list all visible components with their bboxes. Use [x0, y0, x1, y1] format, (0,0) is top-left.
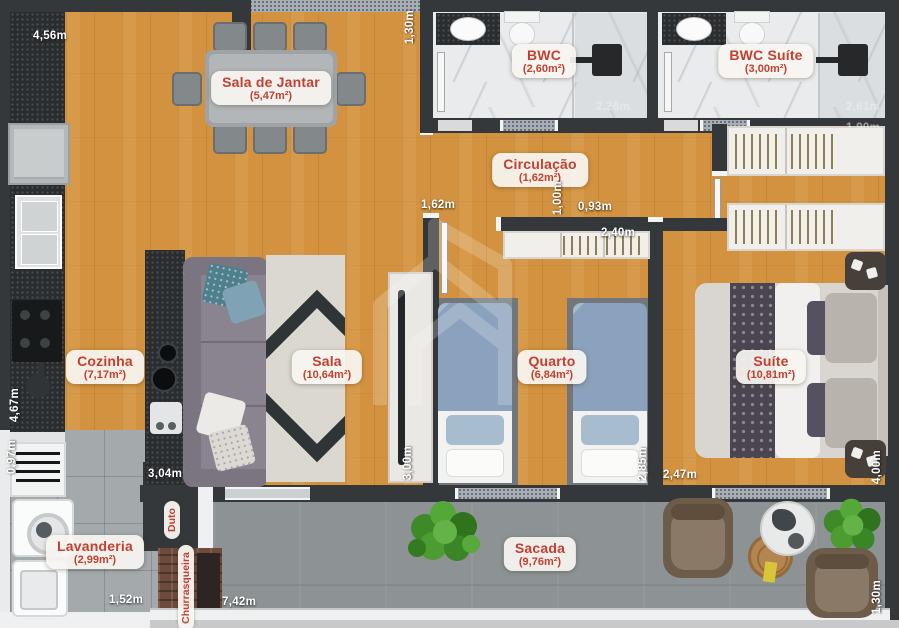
- refrigerator: [8, 123, 70, 185]
- dimension-label: 2,47m: [663, 469, 697, 481]
- room-area: (1,62m²): [503, 172, 577, 184]
- wall: [648, 217, 663, 487]
- room-label-circulacao: Circulação (1,62m²): [492, 153, 588, 187]
- dining-chair: [213, 124, 247, 154]
- dining-chair: [336, 72, 366, 106]
- hanging-clothes: [791, 134, 839, 169]
- room-label-cozinha: Cozinha (7,17m²): [66, 350, 144, 384]
- hanging-clothes: [735, 134, 777, 169]
- room-label-suite: Suíte (10,81m²): [736, 350, 806, 384]
- room-area: (3,00m²): [729, 63, 802, 75]
- bed-pillow: [825, 293, 877, 363]
- hanging-clothes: [563, 236, 597, 255]
- nightstand: [845, 252, 886, 290]
- dimension-label: 4,56m: [33, 30, 67, 42]
- shower-head: [838, 44, 868, 76]
- wall: [420, 0, 433, 135]
- dimension-label: 1,90m: [846, 122, 880, 134]
- room-area: (5,47m²): [222, 90, 320, 102]
- room-label-quarto: Quarto (6,84m²): [517, 350, 586, 384]
- label-duto: Duto: [164, 501, 180, 539]
- room-name: Lavanderia: [57, 538, 133, 554]
- shower-arm: [816, 57, 840, 63]
- kitchen-sink: [15, 195, 62, 269]
- doorway: [664, 120, 698, 131]
- toilet-bowl: [739, 22, 765, 46]
- island-panel: [150, 402, 182, 434]
- hanging-clothes: [735, 210, 777, 244]
- room-area: (2,60m²): [523, 63, 565, 75]
- hanging-clothes: [791, 210, 839, 244]
- room-name: Suíte: [747, 353, 795, 369]
- dining-chair: [172, 72, 202, 106]
- room-name: Sala de Jantar: [222, 74, 320, 90]
- dimension-label: 7,42m: [222, 596, 256, 608]
- dimension-label: 1,00m: [552, 181, 564, 215]
- coffee-table: [760, 501, 815, 556]
- dining-chair: [253, 22, 287, 52]
- dimension-label: 0,93m: [578, 201, 612, 213]
- room-name: Circulação: [503, 156, 577, 172]
- outdoor-armchair: [806, 548, 878, 618]
- room-label-lavanderia: Lavanderia (2,99m²): [46, 535, 144, 569]
- bathroom-sink: [676, 17, 712, 41]
- outdoor-armchair: [663, 498, 733, 578]
- dimension-label: 1,52m: [109, 594, 143, 606]
- balcony-railing: [150, 608, 890, 620]
- faucet-arm: [38, 362, 44, 380]
- plant: [405, 498, 485, 570]
- room-label-sacada: Sacada (9,76m²): [504, 537, 576, 571]
- window: [712, 488, 830, 499]
- window: [500, 120, 558, 131]
- dimension-label: 2,40m: [601, 227, 635, 239]
- room-area: (10,81m²): [747, 369, 795, 381]
- toilet-bowl: [509, 22, 535, 46]
- dimension-label: 2,26m: [596, 101, 630, 113]
- room-label-sala-de-jantar: Sala de Jantar (5,47m²): [211, 71, 331, 105]
- wall-cap: [648, 217, 663, 222]
- doorway: [438, 120, 472, 131]
- dining-chair: [253, 124, 287, 154]
- sliding-door: [225, 487, 310, 500]
- room-area: (2,99m²): [57, 554, 133, 566]
- sink-bowl: [158, 343, 178, 363]
- interior-door: [664, 52, 672, 112]
- room-area: (7,17m²): [77, 369, 133, 381]
- dining-chair: [293, 22, 327, 52]
- shower-head: [592, 44, 622, 76]
- single-bed: [573, 303, 647, 483]
- outer-edge: [150, 620, 899, 628]
- wall: [647, 12, 658, 120]
- cooktop: [12, 300, 62, 362]
- interior-door: [437, 52, 445, 112]
- room-area: (6,84m²): [528, 369, 575, 381]
- wall: [663, 218, 727, 231]
- drying-rack: [10, 442, 66, 497]
- dimension-label: 4,00m: [871, 450, 883, 484]
- room-name: Sala: [303, 353, 351, 369]
- room-name: Sacada: [515, 540, 565, 556]
- shower-glass: [818, 13, 820, 118]
- floor-plan: Sala de Jantar (5,47m²) BWC (2,60m²) BWC…: [0, 0, 899, 628]
- wall: [0, 0, 10, 430]
- room-area: (9,76m²): [515, 556, 565, 568]
- room-label-sala: Sala (10,64m²): [292, 350, 362, 384]
- dining-chair: [213, 22, 247, 52]
- dimension-label: 3,00m: [402, 446, 414, 480]
- bathroom-sink: [450, 17, 486, 41]
- wall-cap: [712, 171, 727, 176]
- label-churrasqueira: Churrasqueira: [178, 545, 194, 628]
- dimension-label: 1,30m: [404, 10, 416, 44]
- dimension-label: 0,97m: [6, 440, 18, 474]
- room-name: Quarto: [528, 353, 575, 369]
- dimension-label: 2,85m: [637, 447, 649, 481]
- room-name: BWC: [523, 47, 565, 63]
- kitchen-counter: [10, 12, 65, 123]
- sink-bowl: [151, 366, 177, 392]
- dimension-label: 4,67m: [9, 388, 21, 422]
- bed-pillow: [825, 378, 877, 448]
- dimension-label: 3,04m: [148, 468, 182, 480]
- room-name: BWC Suíte: [729, 47, 802, 63]
- window: [246, 0, 426, 12]
- dimension-label: 1,62m: [421, 199, 455, 211]
- wall: [712, 124, 727, 176]
- room-label-bwc-suite: BWC Suíte (3,00m²): [718, 44, 813, 78]
- dining-chair: [293, 124, 327, 154]
- dimension-label: 1,30m: [871, 580, 883, 614]
- room-name: Cozinha: [77, 353, 133, 369]
- dimension-label: 2,61m: [846, 101, 880, 113]
- room-area: (10,64m²): [303, 369, 351, 381]
- room-label-bwc: BWC (2,60m²): [512, 44, 576, 78]
